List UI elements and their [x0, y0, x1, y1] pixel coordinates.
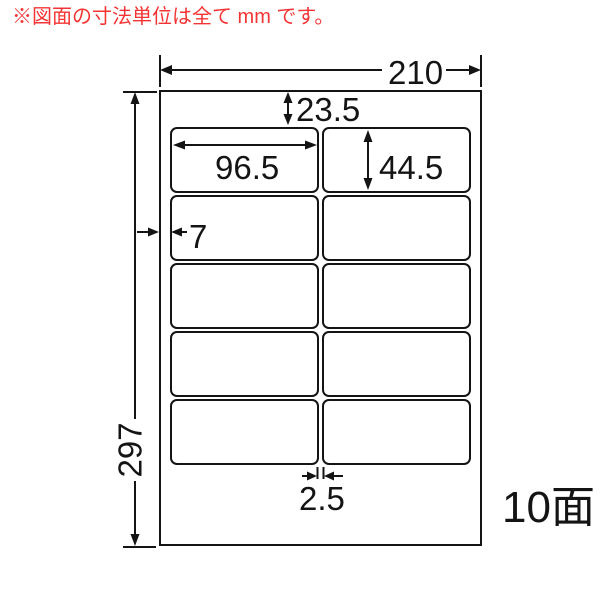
label-cell: [170, 399, 319, 465]
dim-label-height-value: 44.5: [379, 151, 443, 184]
label-cell: [322, 399, 471, 465]
dim-label-width-value: 96.5: [215, 151, 279, 184]
label-cell: [322, 331, 471, 397]
label-cell: [170, 263, 319, 329]
arrowhead-down: [131, 534, 140, 546]
label-cell: [322, 263, 471, 329]
dim-sheet-width-value: 210: [388, 56, 443, 89]
arrowhead-left: [160, 65, 172, 75]
dim-column-gap-value: 2.5: [299, 482, 345, 515]
arrowhead-up: [131, 92, 140, 104]
dim-sheet-height-arrow: [123, 92, 157, 547]
dim-left-margin-value: 7: [189, 220, 207, 253]
unit-note: ※図面の寸法単位は全て mm です。: [12, 4, 334, 30]
extension-ticks: [123, 92, 157, 547]
dim-top-margin-value: 23.5: [296, 93, 360, 126]
label-cell: [170, 331, 319, 397]
label-cell: [322, 195, 471, 261]
faces-count-label: 10面: [502, 486, 595, 530]
dim-sheet-height-value: 297: [114, 422, 147, 477]
dimension-drawing-canvas: ※図面の寸法単位は全て mm です。: [0, 0, 601, 601]
arrowhead-right: [148, 228, 159, 237]
arrowhead-right: [469, 65, 481, 75]
